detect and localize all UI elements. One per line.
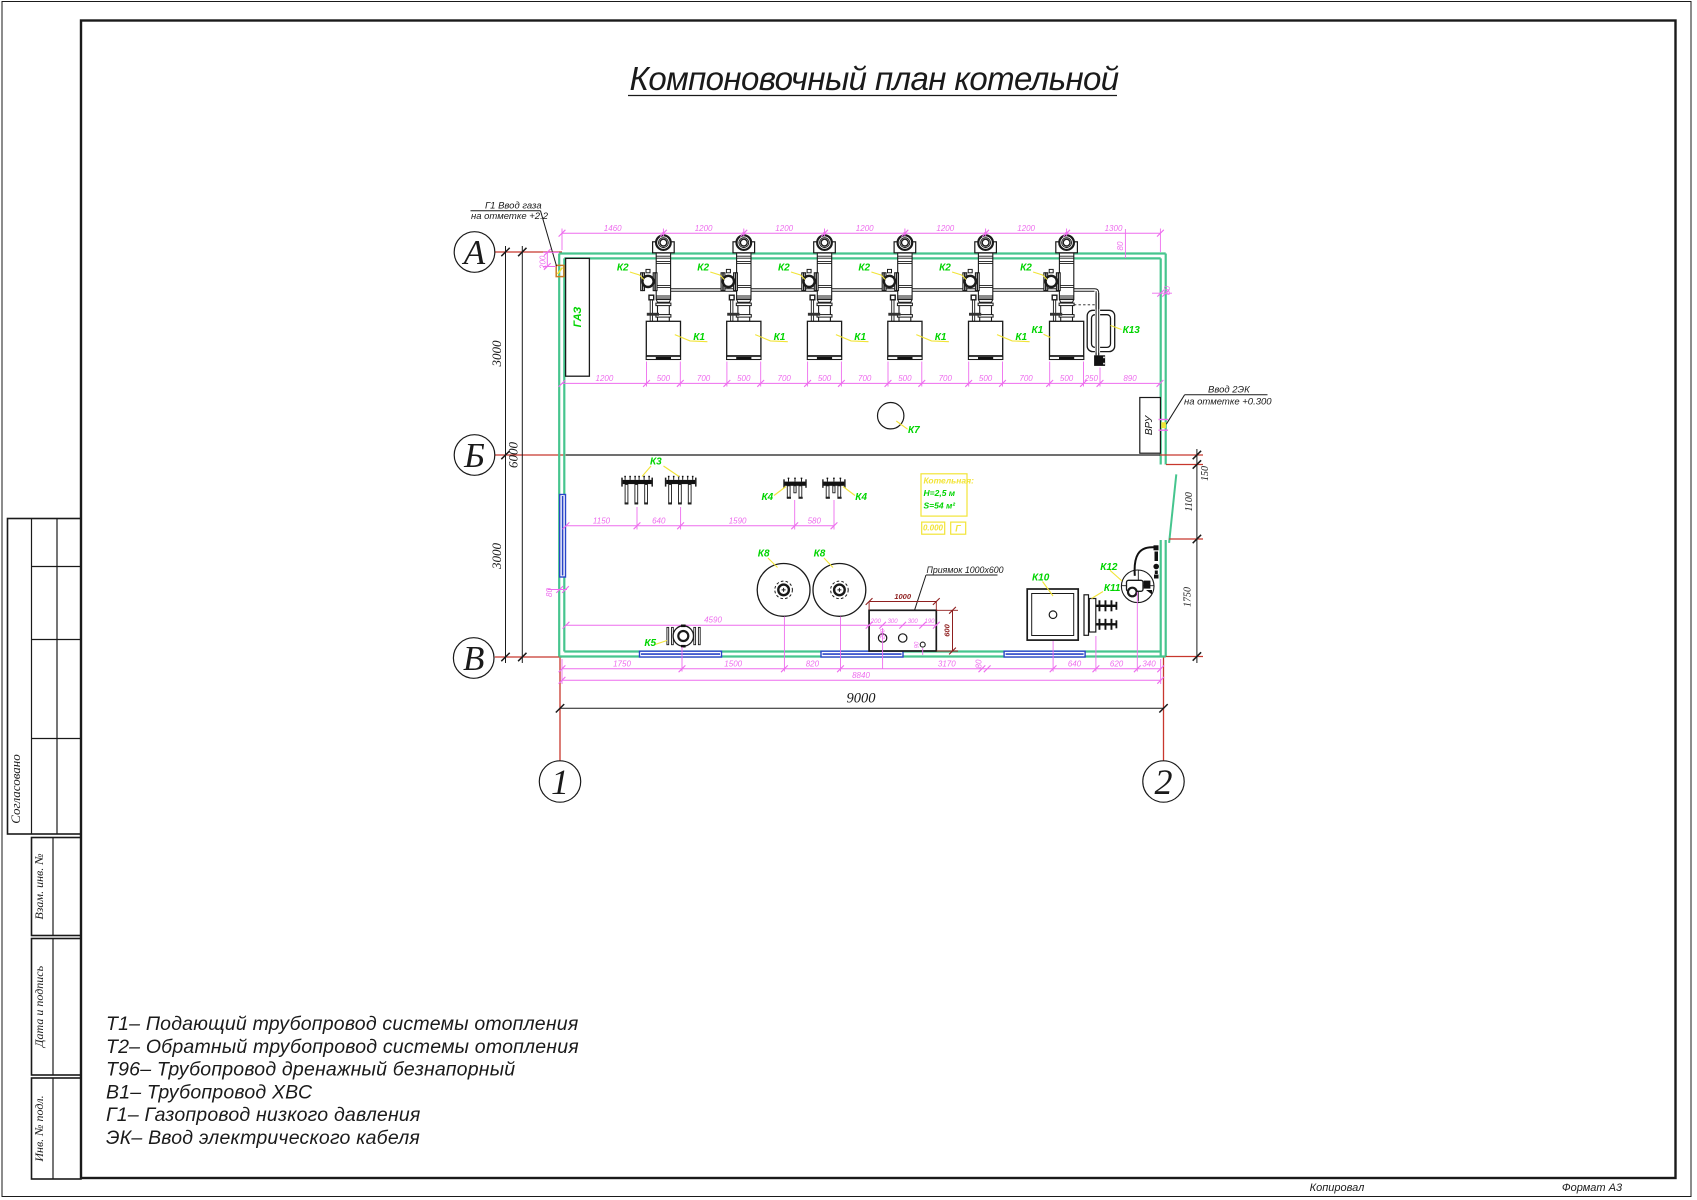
svg-text:500: 500 [657, 374, 671, 383]
svg-text:700: 700 [778, 374, 792, 383]
svg-text:500: 500 [818, 374, 832, 383]
svg-text:300: 300 [908, 619, 919, 625]
svg-text:1200: 1200 [596, 374, 614, 383]
svg-text:500: 500 [1060, 374, 1074, 383]
svg-text:Котельная:: Котельная: [924, 476, 975, 486]
svg-text:К2: К2 [617, 263, 629, 274]
svg-text:К5: К5 [644, 638, 656, 649]
svg-text:700: 700 [697, 374, 711, 383]
svg-text:К8: К8 [758, 549, 770, 560]
svg-text:К2: К2 [1020, 263, 1032, 274]
svg-text:на отметке +2.2: на отметке +2.2 [471, 211, 549, 222]
svg-text:К7: К7 [908, 425, 920, 436]
svg-text:1200: 1200 [775, 224, 793, 233]
svg-text:6000: 6000 [506, 442, 521, 469]
svg-text:500: 500 [737, 374, 751, 383]
svg-text:ГАЗ: ГАЗ [572, 307, 584, 328]
svg-text:1150: 1150 [593, 516, 611, 525]
svg-text:Т96– Трубопровод дренажный без: Т96– Трубопровод дренажный безнапорный [106, 1059, 515, 1081]
svg-text:Т2– Обратный трубопровод систе: Т2– Обратный трубопровод системы отоплен… [106, 1036, 579, 1058]
svg-text:200: 200 [870, 619, 882, 625]
svg-text:К1: К1 [693, 332, 705, 343]
svg-text:0.000: 0.000 [923, 524, 944, 533]
svg-text:Б: Б [463, 436, 485, 475]
svg-text:К2: К2 [939, 263, 951, 274]
svg-text:К13: К13 [1123, 325, 1141, 336]
svg-text:1750: 1750 [1183, 587, 1194, 607]
svg-text:1200: 1200 [1017, 224, 1035, 233]
svg-text:К1: К1 [774, 332, 786, 343]
svg-text:9000: 9000 [847, 691, 877, 707]
svg-text:ВРУ: ВРУ [1144, 414, 1155, 435]
svg-text:Т1– Подающий трубопровод систе: Т1– Подающий трубопровод системы отоплен… [106, 1013, 579, 1035]
svg-text:8840: 8840 [852, 671, 870, 680]
svg-text:К1: К1 [1032, 325, 1044, 336]
svg-text:К4: К4 [855, 492, 867, 503]
svg-text:3000: 3000 [489, 340, 504, 368]
svg-text:Формат А3: Формат А3 [1562, 1182, 1623, 1194]
svg-text:700: 700 [939, 374, 953, 383]
svg-text:1750: 1750 [613, 659, 631, 668]
svg-text:Ввод 2ЭК: Ввод 2ЭК [1208, 385, 1251, 396]
svg-text:К12: К12 [1100, 562, 1118, 573]
svg-text:700: 700 [1019, 374, 1033, 383]
svg-text:Дата и подпись: Дата и подпись [32, 965, 46, 1048]
svg-text:на отметке +0.300: на отметке +0.300 [1184, 397, 1272, 408]
svg-text:В: В [463, 639, 484, 678]
svg-text:80: 80 [1163, 286, 1172, 295]
svg-text:S=54 м²: S=54 м² [924, 501, 957, 511]
svg-text:Г1 Ввод газа: Г1 Ввод газа [485, 201, 542, 212]
svg-text:К1: К1 [1015, 332, 1027, 343]
svg-text:В1– Трубопровод ХВС: В1– Трубопровод ХВС [106, 1081, 313, 1103]
svg-text:К2: К2 [778, 263, 790, 274]
svg-text:1200: 1200 [936, 224, 954, 233]
svg-text:ЭК– Ввод электрического кабеля: ЭК– Ввод электрического кабеля [106, 1127, 420, 1149]
svg-text:300: 300 [888, 619, 899, 625]
svg-text:К2: К2 [697, 263, 709, 274]
svg-text:Копировал: Копировал [1310, 1182, 1365, 1194]
svg-text:Инв. № подл.: Инв. № подл. [32, 1095, 46, 1162]
svg-text:4590: 4590 [704, 616, 722, 625]
svg-text:3000: 3000 [489, 543, 504, 571]
svg-text:200: 200 [539, 255, 548, 270]
svg-text:80: 80 [1116, 241, 1125, 250]
svg-text:700: 700 [858, 374, 872, 383]
svg-text:150: 150 [1200, 466, 1211, 481]
svg-text:К8: К8 [814, 549, 826, 560]
svg-text:1: 1 [551, 762, 569, 802]
svg-text:К4: К4 [762, 492, 774, 503]
svg-text:1460: 1460 [604, 224, 622, 233]
svg-text:80: 80 [545, 588, 554, 597]
svg-text:К1: К1 [854, 332, 866, 343]
svg-text:90: 90 [915, 641, 921, 648]
svg-text:2: 2 [1155, 762, 1173, 802]
svg-text:Г1– Газопровод низкого давлени: Г1– Газопровод низкого давления [106, 1104, 421, 1126]
svg-text:580: 580 [808, 516, 822, 525]
svg-text:1100: 1100 [1184, 492, 1195, 511]
svg-text:Взам. инв. №: Взам. инв. № [32, 853, 46, 919]
svg-text:1300: 1300 [1105, 224, 1123, 233]
svg-text:К10: К10 [1032, 573, 1050, 584]
svg-text:1590: 1590 [729, 516, 747, 525]
svg-text:1000: 1000 [894, 592, 912, 601]
svg-text:190: 190 [924, 619, 935, 625]
svg-text:500: 500 [979, 374, 993, 383]
svg-text:Приямок 1000х600: Приямок 1000х600 [927, 565, 1004, 575]
svg-text:500: 500 [898, 374, 912, 383]
svg-text:3170: 3170 [938, 659, 956, 668]
svg-text:640: 640 [652, 516, 666, 525]
svg-text:340: 340 [1142, 659, 1156, 668]
svg-text:Г: Г [955, 524, 961, 534]
svg-text:1200: 1200 [695, 224, 713, 233]
svg-text:250: 250 [1084, 374, 1099, 383]
svg-text:К11: К11 [1104, 583, 1121, 594]
svg-text:80: 80 [975, 659, 984, 668]
svg-text:К3: К3 [650, 457, 662, 468]
svg-text:1200: 1200 [856, 224, 874, 233]
svg-text:600: 600 [943, 623, 952, 636]
svg-text:Согласовано: Согласовано [8, 754, 23, 824]
svg-text:К2: К2 [858, 263, 870, 274]
svg-text:640: 640 [1068, 659, 1082, 668]
svg-text:820: 820 [806, 659, 820, 668]
svg-text:Н=2,5 м: Н=2,5 м [924, 488, 956, 498]
svg-text:1500: 1500 [724, 659, 742, 668]
svg-text:К1: К1 [935, 332, 947, 343]
svg-text:Компоновочный план котельной: Компоновочный план котельной [629, 60, 1118, 97]
svg-text:200: 200 [881, 628, 887, 640]
svg-text:620: 620 [1110, 659, 1124, 668]
svg-text:890: 890 [1123, 374, 1137, 383]
svg-text:А: А [462, 233, 486, 272]
